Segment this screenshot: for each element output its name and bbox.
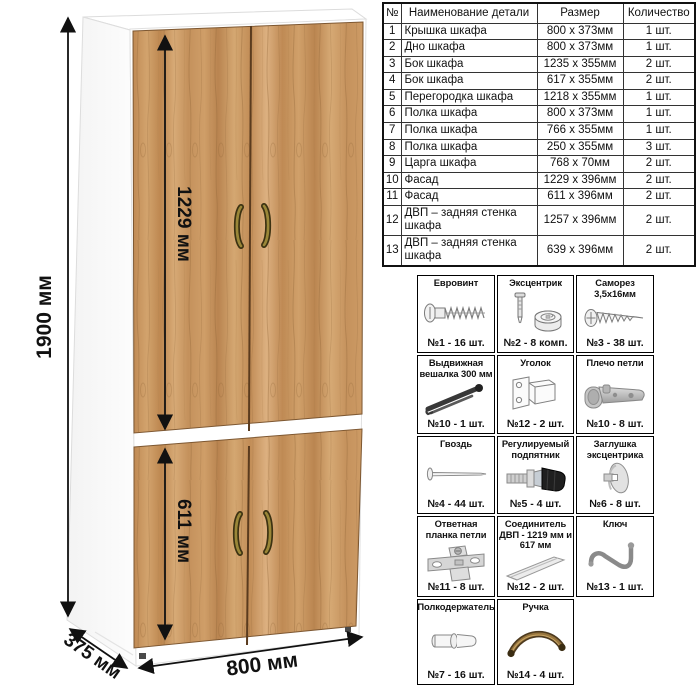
table-row: 12ДВП – задняя стенка шкафа1257 х 396мм2… [383,205,695,235]
col-header-size: Размер [537,3,623,23]
foot-left [139,653,146,659]
hardware-cell-connector: Соединитель ДВП - 1219 мм и 617 мм №12 -… [497,516,574,597]
hardware-cell-hanger: Выдвижная вешалка 300 мм №10 - 1 шт. [417,355,495,434]
col-header-qty: Количество [623,3,695,23]
wardrobe-side-panel [67,17,136,666]
table-row: 2Дно шкафа800 х 373мм1 шт. [383,40,695,57]
nail-icon [423,450,489,498]
total-height-label: 1900 мм [33,275,56,359]
parts-table-header: № Наименование детали Размер Количество [383,3,695,23]
assembly-sheet: 1900 мм 1229 мм 611 мм 800 мм 375 мм № Н… [0,0,700,700]
hinge-plate-icon [422,540,490,581]
hardware-cell-cap: Заглушка эксцентрика №6 - 8 шт. [576,436,654,514]
table-row: 6Полка шкафа800 х 373мм1 шт. [383,106,695,123]
hardware-cell-euroscrew: Евровинт №1 - 16 шт. [417,275,495,353]
euroscrew-icon [422,289,490,337]
table-row: 5Перегородка шкафа1218 х 355мм1 шт. [383,89,695,106]
table-row: 11Фасад611 х 396мм2 шт. [383,189,695,206]
cam-cap-icon [585,460,645,498]
table-row: 1Крышка шкафа800 х 373мм1 шт. [383,23,695,40]
hardware-cell-eccentric: Эксцентрик №2 - 8 комп. [497,275,574,353]
wardrobe-illustration: 1900 мм 1229 мм 611 мм 800 мм 375 мм [0,0,420,700]
lower-doors [134,429,362,648]
lower-door-height-label: 611 мм [173,499,194,563]
table-row: 4Бок шкафа617 х 355мм2 шт. [383,73,695,90]
hardware-grid: Евровинт №1 - 16 шт. Эксцентрик №2 - 8 к… [417,275,654,685]
hardware-cell-plate: Ответная планка петли №11 - 8 шт. [417,516,495,597]
table-row: 10Фасад1229 х 396мм2 шт. [383,172,695,189]
upper-door-height-label: 1229 мм [173,186,194,262]
hdf-connector-icon [502,551,570,581]
table-row: 8Полка шкафа250 х 355мм3 шт. [383,139,695,156]
hardware-cell-handle: Ручка №14 - 4 шт. [497,599,574,685]
screw-icon [582,299,648,337]
corner-bracket-icon [503,369,569,418]
upper-doors [133,22,363,433]
hardware-cell-screw: Саморез 3,5х16мм №3 - 38 шт. [576,275,654,353]
eccentric-cam-icon [502,289,570,337]
hardware-cell-empty [576,599,654,685]
hardware-cell-hinge: Плечо петли №10 - 8 шт. [576,355,654,434]
shelf-pin-icon [424,613,488,669]
table-row: 3Бок шкафа1235 х 355мм2 шт. [383,56,695,73]
col-header-num: № [383,3,401,23]
hardware-cell-bracket: Уголок №12 - 2 шт. [497,355,574,434]
hardware-cell-nail: Гвоздь №4 - 44 шт. [417,436,495,514]
hinge-arm-icon [581,369,649,418]
hardware-cell-foot: Регулируемый подпятник №5 - 4 шт. [497,436,574,514]
table-row: 9Царга шкафа768 х 70мм2 шт. [383,156,695,173]
col-header-name: Наименование детали [401,3,537,23]
hex-key-icon [583,530,647,581]
foot-right [345,627,351,632]
hardware-cell-key: Ключ №13 - 1 шт. [576,516,654,597]
adjustable-foot-icon [502,460,570,498]
handle-icon [502,613,570,669]
table-row: 7Полка шкафа766 х 355мм1 шт. [383,122,695,139]
table-row: 13ДВП – задняя стенка шкафа639 х 396мм2 … [383,235,695,266]
pullout-hanger-icon [422,379,490,418]
parts-table: № Наименование детали Размер Количество … [382,2,696,267]
hardware-cell-shelf-pin: Полкодержатель №7 - 16 шт. [417,599,495,685]
